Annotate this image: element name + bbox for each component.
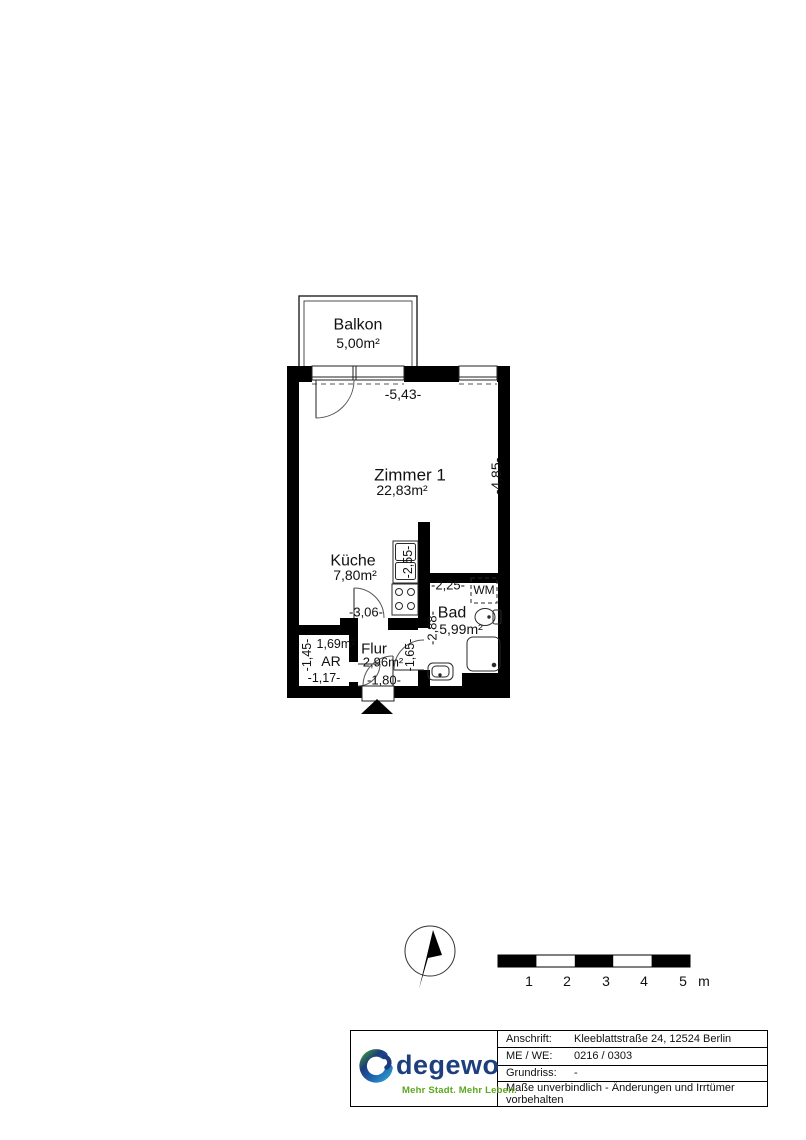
dim-room-height: -4,85- xyxy=(488,457,504,494)
floorplan-drawing: Balkon 5,00m² xyxy=(0,0,806,1140)
ar-area-label: 1,69m² xyxy=(317,637,356,651)
wall-segment xyxy=(388,618,418,630)
mewe-label: ME / WE: xyxy=(498,1050,574,1062)
scale-bar: 1 2 3 4 5 m xyxy=(498,955,710,989)
balcony-door xyxy=(316,380,354,418)
grundriss-value: - xyxy=(574,1067,578,1079)
washbasin xyxy=(428,663,453,680)
balcony-name-label: Balkon xyxy=(334,317,383,334)
scale-unit: m xyxy=(698,973,710,989)
flur-area-label: 2,96m² xyxy=(363,655,404,670)
degewo-tagline: Mehr Stadt. Mehr Leben. xyxy=(402,1085,517,1096)
wall-segment xyxy=(404,366,459,382)
floorplan-page: Balkon 5,00m² xyxy=(0,0,806,1140)
dim-bad-width: -2,25- xyxy=(431,578,465,593)
dim-kitchen-width: -3,06- xyxy=(349,605,383,620)
disclaimer-text: Maße unverbindlich - Änderungen und Irrt… xyxy=(498,1082,767,1106)
degewo-swoosh-icon xyxy=(356,1042,396,1092)
anschrift-value: Kleeblattstraße 24, 12524 Berlin xyxy=(574,1033,731,1045)
title-block-info: Anschrift: Kleeblattstraße 24, 12524 Ber… xyxy=(498,1031,767,1106)
title-block-row-anschrift: Anschrift: Kleeblattstraße 24, 12524 Ber… xyxy=(498,1031,767,1048)
kitchen-stove xyxy=(392,584,418,615)
dim-ar-height: -1,45- xyxy=(300,639,314,672)
wall-segment xyxy=(287,625,358,635)
scale-tick-3: 3 xyxy=(602,973,610,989)
degewo-logo: degewo Mehr Stadt. Mehr Leben. xyxy=(351,1031,498,1106)
title-block: degewo Mehr Stadt. Mehr Leben. Anschrift… xyxy=(350,1030,768,1107)
scale-tick-4: 4 xyxy=(640,973,648,989)
balcony-area-label: 5,00m² xyxy=(336,335,380,351)
dim-ar-width: -1,17- xyxy=(308,671,341,685)
ar-name-label: AR xyxy=(321,653,340,669)
title-block-row-mewe: ME / WE: 0216 / 0303 xyxy=(498,1048,767,1065)
zimmer1-area-label: 22,83m² xyxy=(376,482,428,498)
scale-tick-1: 1 xyxy=(525,973,533,989)
room-window xyxy=(459,366,497,380)
dim-room-width: -5,43- xyxy=(385,386,422,402)
degewo-brand-text: degewo xyxy=(396,1050,500,1081)
balcony-window xyxy=(312,366,404,380)
kueche-area-label: 7,80m² xyxy=(333,567,377,583)
dim-flur-height: -1,65- xyxy=(403,639,417,672)
scale-tick-2: 2 xyxy=(563,973,571,989)
scale-tick-5: 5 xyxy=(679,973,687,989)
dim-bad-height: -2,88- xyxy=(425,611,440,645)
wall-segment xyxy=(349,682,358,692)
dim-flur-width: -1,80- xyxy=(367,673,401,688)
bad-area-label: 5,99m² xyxy=(439,621,483,637)
title-block-row-grundriss: Grundriss: - xyxy=(498,1066,767,1082)
wall-segment xyxy=(287,366,299,698)
shower xyxy=(467,637,500,671)
wall-segment xyxy=(462,673,510,698)
grundriss-label: Grundriss: xyxy=(498,1067,574,1079)
north-needle xyxy=(419,930,442,989)
dim-kitchen-unit: -2,55- xyxy=(401,546,415,579)
north-arrow xyxy=(405,926,455,989)
balcony: Balkon 5,00m² xyxy=(299,296,417,369)
mewe-value: 0216 / 0303 xyxy=(574,1050,632,1062)
washing-machine-label: WM xyxy=(473,583,494,597)
bad-name-label: Bad xyxy=(438,605,466,622)
anschrift-label: Anschrift: xyxy=(498,1033,574,1045)
